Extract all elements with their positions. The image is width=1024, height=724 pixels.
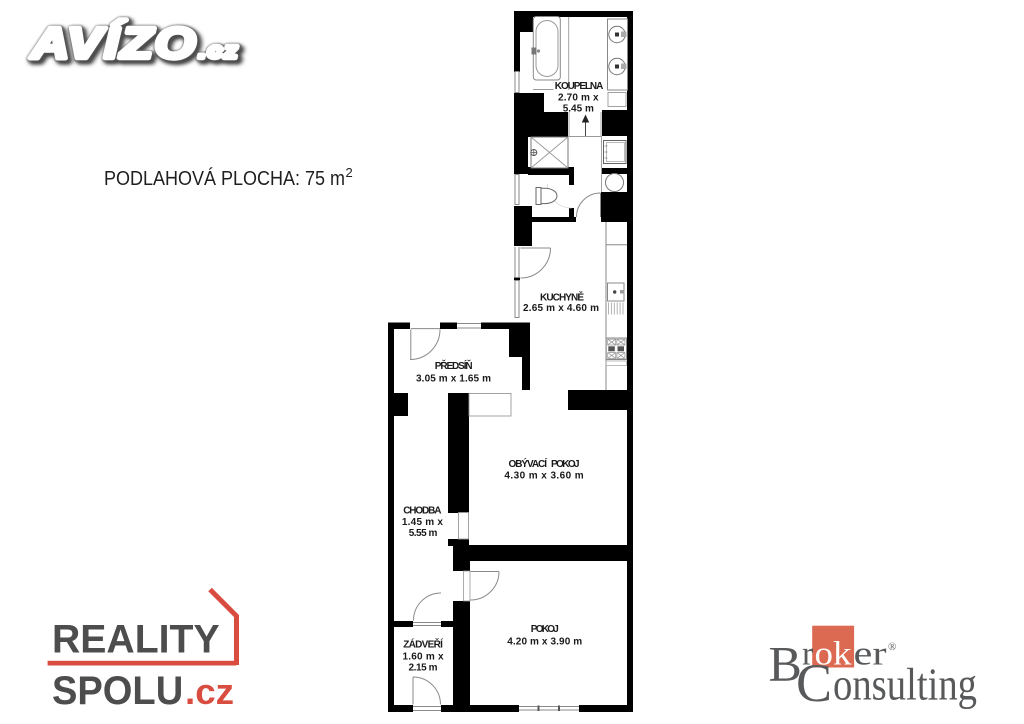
svg-text:5.45 m: 5.45 m: [563, 103, 594, 114]
svg-text:5.55 m: 5.55 m: [409, 528, 438, 539]
svg-text:®: ®: [888, 641, 896, 653]
svg-text:.cz: .cz: [185, 671, 234, 712]
svg-text:KUCHYNĚ: KUCHYNĚ: [540, 291, 584, 304]
svg-text:1.45 m x: 1.45 m x: [402, 517, 443, 528]
svg-text:PODLAHOVÁ PLOCHA: 75 m: PODLAHOVÁ PLOCHA: 75 m: [104, 167, 345, 190]
svg-text:SPOLU: SPOLU: [52, 669, 183, 713]
svg-text:4.30 m x 3.60 m: 4.30 m x 3.60 m: [504, 471, 583, 482]
svg-text:C: C: [796, 653, 832, 713]
svg-text:POKOJ: POKOJ: [531, 624, 559, 635]
svg-text:AVÍZO.cz: AVÍZO.cz: [30, 19, 239, 68]
svg-text:onsulting: onsulting: [833, 659, 977, 710]
svg-text:REALITY: REALITY: [52, 618, 220, 662]
svg-text:2.15 m: 2.15 m: [409, 663, 438, 674]
svg-text:4.20 m x 3.90 m: 4.20 m x 3.90 m: [507, 637, 582, 648]
svg-text:1.60 m x: 1.60 m x: [403, 652, 444, 663]
svg-text:POKOJ: POKOJ: [551, 459, 580, 470]
svg-text:CHODBA: CHODBA: [403, 506, 441, 517]
svg-text:2.70 m x: 2.70 m x: [558, 92, 599, 103]
svg-text:KOUPELNA: KOUPELNA: [555, 81, 604, 92]
svg-text:PŘEDSÍŇ: PŘEDSÍŇ: [435, 359, 473, 372]
svg-text:2: 2: [346, 165, 353, 180]
svg-text:OBÝVACÍ: OBÝVACÍ: [509, 457, 548, 470]
svg-text:ZÁDVEŘÍ: ZÁDVEŘÍ: [403, 638, 443, 651]
svg-text:3.05 m x 1.65 m: 3.05 m x 1.65 m: [416, 374, 491, 385]
svg-text:2.65 m x 4.60 m: 2.65 m x 4.60 m: [523, 303, 599, 314]
